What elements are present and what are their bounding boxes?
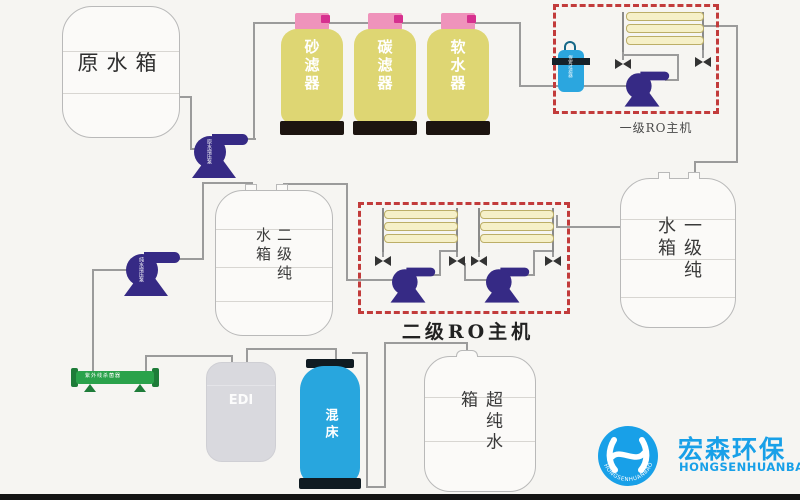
ro-membrane — [626, 24, 704, 33]
softener-vessel: 软水器 — [427, 13, 489, 138]
logo-en: HONGSENHUANBAO — [679, 460, 800, 474]
tank-stage2-pure: 二级纯水箱 — [215, 190, 333, 336]
edi-module: EDI — [206, 362, 276, 462]
pipe — [253, 22, 255, 140]
logo-circle: HONGSENHUANBAO — [586, 418, 672, 494]
ro-membrane — [626, 36, 704, 45]
sand-filter-vessel: 砂滤器 — [281, 13, 343, 138]
ro-stage2-label: 二级RO主机 — [368, 317, 568, 344]
brand-logo: HONGSENHUANBAO 宏森环保 HONGSENHUANBAO — [586, 418, 796, 494]
ro-membrane — [480, 234, 554, 243]
tank-level-line — [621, 297, 735, 298]
pipe — [246, 348, 248, 363]
pure-water-pump: 纯水增压泵 — [126, 250, 182, 296]
pipe — [736, 25, 738, 163]
valve-icon — [615, 59, 631, 69]
pipe — [92, 269, 94, 373]
vessel-valve-icon — [467, 15, 476, 23]
mixed-bed-column: 混床 — [300, 366, 360, 484]
tank-raw-water: 原水箱 — [62, 6, 180, 138]
ro-membrane — [384, 210, 458, 219]
raw-water-pump: 原水增压泵 — [194, 132, 250, 178]
tank-level-line — [207, 385, 275, 386]
pipe — [145, 355, 233, 357]
tank-nozzle — [276, 184, 288, 190]
process-diagram: 原水箱 砂滤器 碳滤器 软水器 原水增压泵 纯水增压泵 — [0, 0, 800, 500]
tank-ultra-pure-label: 超纯水箱 — [455, 391, 505, 458]
vessel-valve-icon — [394, 15, 403, 23]
security-filter-handle-icon — [564, 41, 576, 50]
tank-raw-water-label: 原水箱 — [63, 47, 179, 77]
pipe — [202, 182, 204, 260]
pipe — [694, 161, 738, 163]
vessel-base — [280, 121, 344, 135]
sand-filter-label: 砂滤器 — [302, 39, 323, 93]
pipe — [92, 269, 130, 271]
vessel-base — [353, 121, 417, 135]
ro-stage1-label: 一级RO主机 — [578, 119, 734, 136]
ro-membrane — [384, 222, 458, 231]
bottom-border — [0, 494, 800, 500]
valve-icon — [471, 256, 487, 266]
uv-sterilizer-label: 紫外线杀菌器 — [85, 374, 121, 379]
vessel-valve-icon — [321, 15, 330, 23]
pipe — [384, 342, 386, 488]
pipe — [246, 348, 337, 350]
tank-nozzle — [245, 184, 257, 190]
mixed-bed-label: 混床 — [321, 408, 340, 442]
softener-label: 软水器 — [448, 39, 469, 93]
ro-membrane — [480, 210, 554, 219]
valve-icon — [695, 57, 711, 67]
carbon-filter-vessel: 碳滤器 — [354, 13, 416, 138]
ro-membrane — [480, 222, 554, 231]
ro-manifold — [622, 12, 624, 56]
ro-membrane — [626, 12, 704, 21]
pipe — [366, 352, 368, 488]
pipe — [145, 355, 147, 372]
raw-pump-label: 原水增压泵 — [206, 139, 211, 164]
tank-stage1-pure: 一级纯水箱 — [620, 178, 736, 328]
security-filter-label: 保安过滤器 — [567, 55, 572, 78]
edi-label: EDI — [229, 393, 254, 408]
tank-level-line — [63, 93, 179, 94]
tank-stage1-pure-label: 一级纯水箱 — [652, 216, 704, 290]
pipe — [346, 183, 348, 281]
ro-membrane — [384, 234, 458, 243]
tank-nozzle — [658, 172, 670, 179]
tank-ultra-pure: 超纯水箱 — [424, 356, 536, 492]
uv-foot — [134, 384, 146, 392]
tank-stage2-pure-label: 二级纯水箱 — [253, 227, 295, 299]
uv-foot — [84, 384, 96, 392]
valve-icon — [449, 256, 465, 266]
carbon-filter-label: 碳滤器 — [375, 39, 396, 93]
pure-pump-label: 纯水增压泵 — [138, 257, 143, 282]
mixed-bed-base — [299, 478, 361, 489]
pipe — [519, 22, 521, 86]
tank-level-line — [216, 301, 332, 302]
pipe — [366, 486, 386, 488]
valve-icon — [375, 256, 391, 266]
pipe — [283, 183, 348, 185]
tank-nozzle — [688, 172, 700, 179]
tank-nozzle — [456, 350, 478, 357]
pipe — [190, 96, 192, 150]
vessel-base — [426, 121, 490, 135]
valve-icon — [545, 256, 561, 266]
